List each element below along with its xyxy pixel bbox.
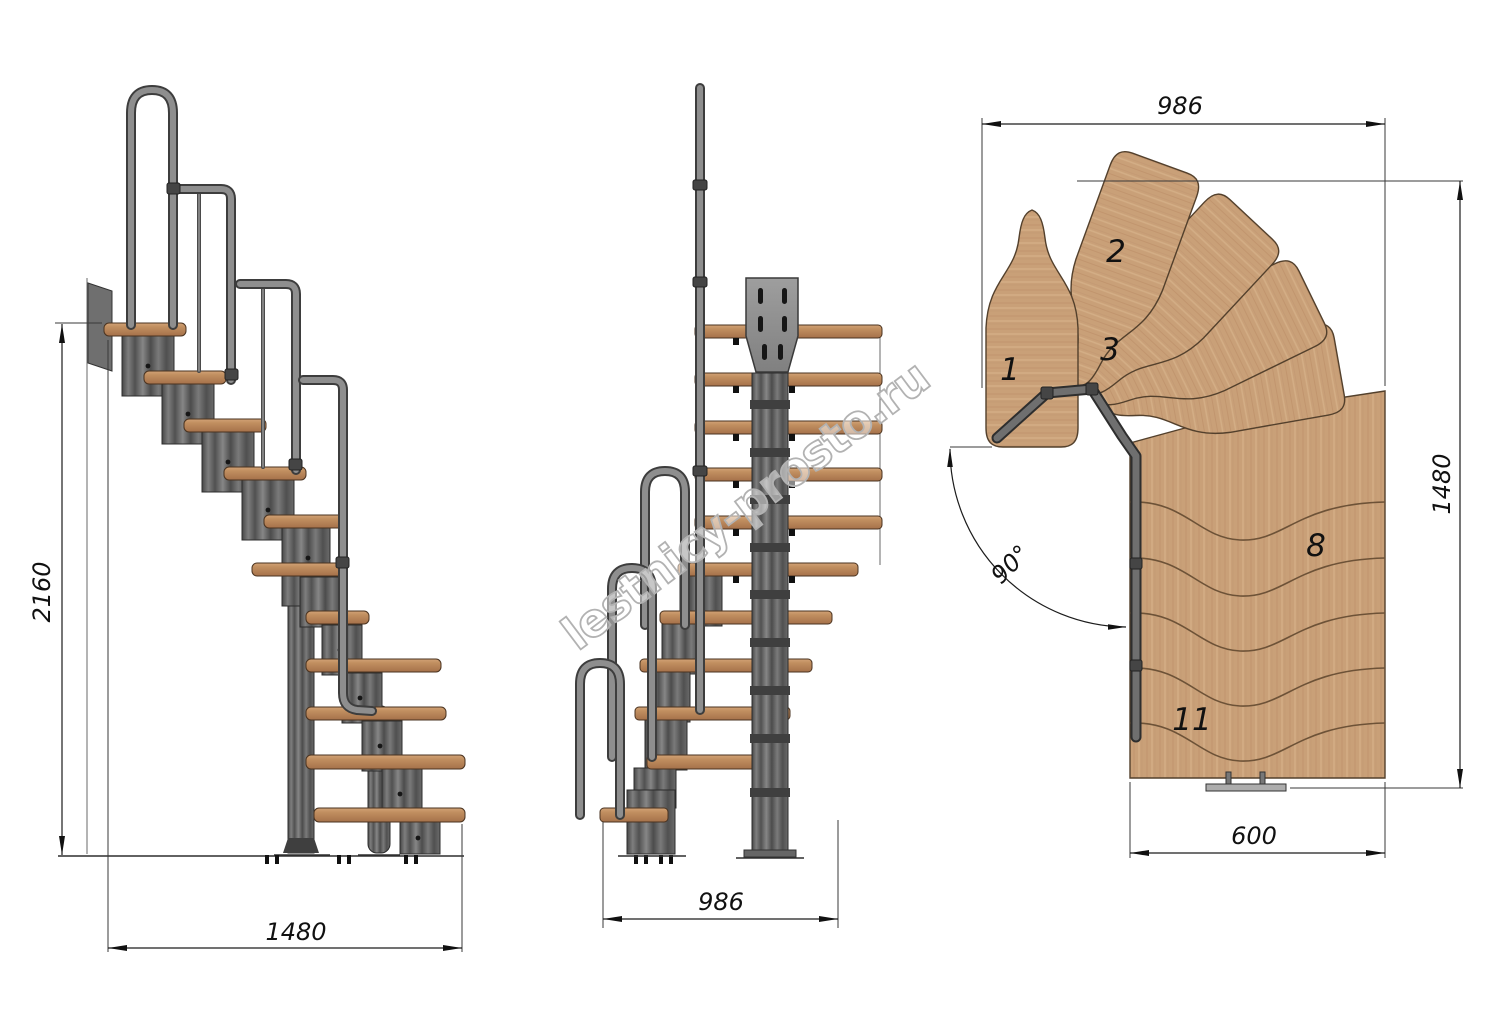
dimension-plan-flight-width: 600 (1130, 782, 1385, 858)
tread (600, 808, 668, 822)
column-foot (744, 850, 796, 857)
dimension-side-height: 2160 (28, 323, 102, 855)
column-base (283, 838, 319, 853)
tread (306, 659, 441, 672)
mounting-plate (746, 278, 798, 372)
flight-treads (1130, 391, 1385, 778)
handrail-segment (167, 183, 372, 711)
dim-label-90deg: 90° (985, 539, 1035, 589)
technical-drawing-page: 2160 1480 (0, 0, 1500, 1009)
step-number-3: 3 (1100, 332, 1120, 368)
dimension-turn-angle: 90° (947, 447, 1126, 630)
step-number-11: 11 (1172, 702, 1211, 738)
dim-label-986-front: 986 (698, 888, 744, 916)
dim-label-986-plan: 986 (1157, 92, 1203, 120)
step-number-2: 2 (1106, 234, 1126, 270)
dim-label-600: 600 (1231, 822, 1277, 850)
staircase-drawing-canvas: 2160 1480 (0, 0, 1500, 1009)
tread (306, 755, 465, 769)
step-number-1: 1 (1000, 352, 1020, 388)
tread (314, 808, 465, 822)
fan-treads (986, 147, 1347, 452)
tread (252, 563, 347, 576)
side-elevation-view: 2160 1480 (28, 90, 465, 952)
dimension-side-length: 1480 (108, 340, 462, 952)
dim-label-1480-side: 1480 (265, 918, 326, 946)
dim-label-1480-plan: 1480 (1428, 453, 1456, 514)
tread (184, 419, 266, 432)
plan-view: 986 1480 600 90° 1 2 (947, 92, 1463, 858)
dim-label-2160: 2160 (28, 561, 56, 622)
tread (144, 371, 226, 384)
tread (306, 611, 369, 624)
step-number-8: 8 (1306, 528, 1326, 564)
tread (264, 515, 346, 528)
handrail-loop (131, 90, 173, 325)
tread (647, 755, 767, 769)
front-handrail-post (693, 88, 707, 710)
